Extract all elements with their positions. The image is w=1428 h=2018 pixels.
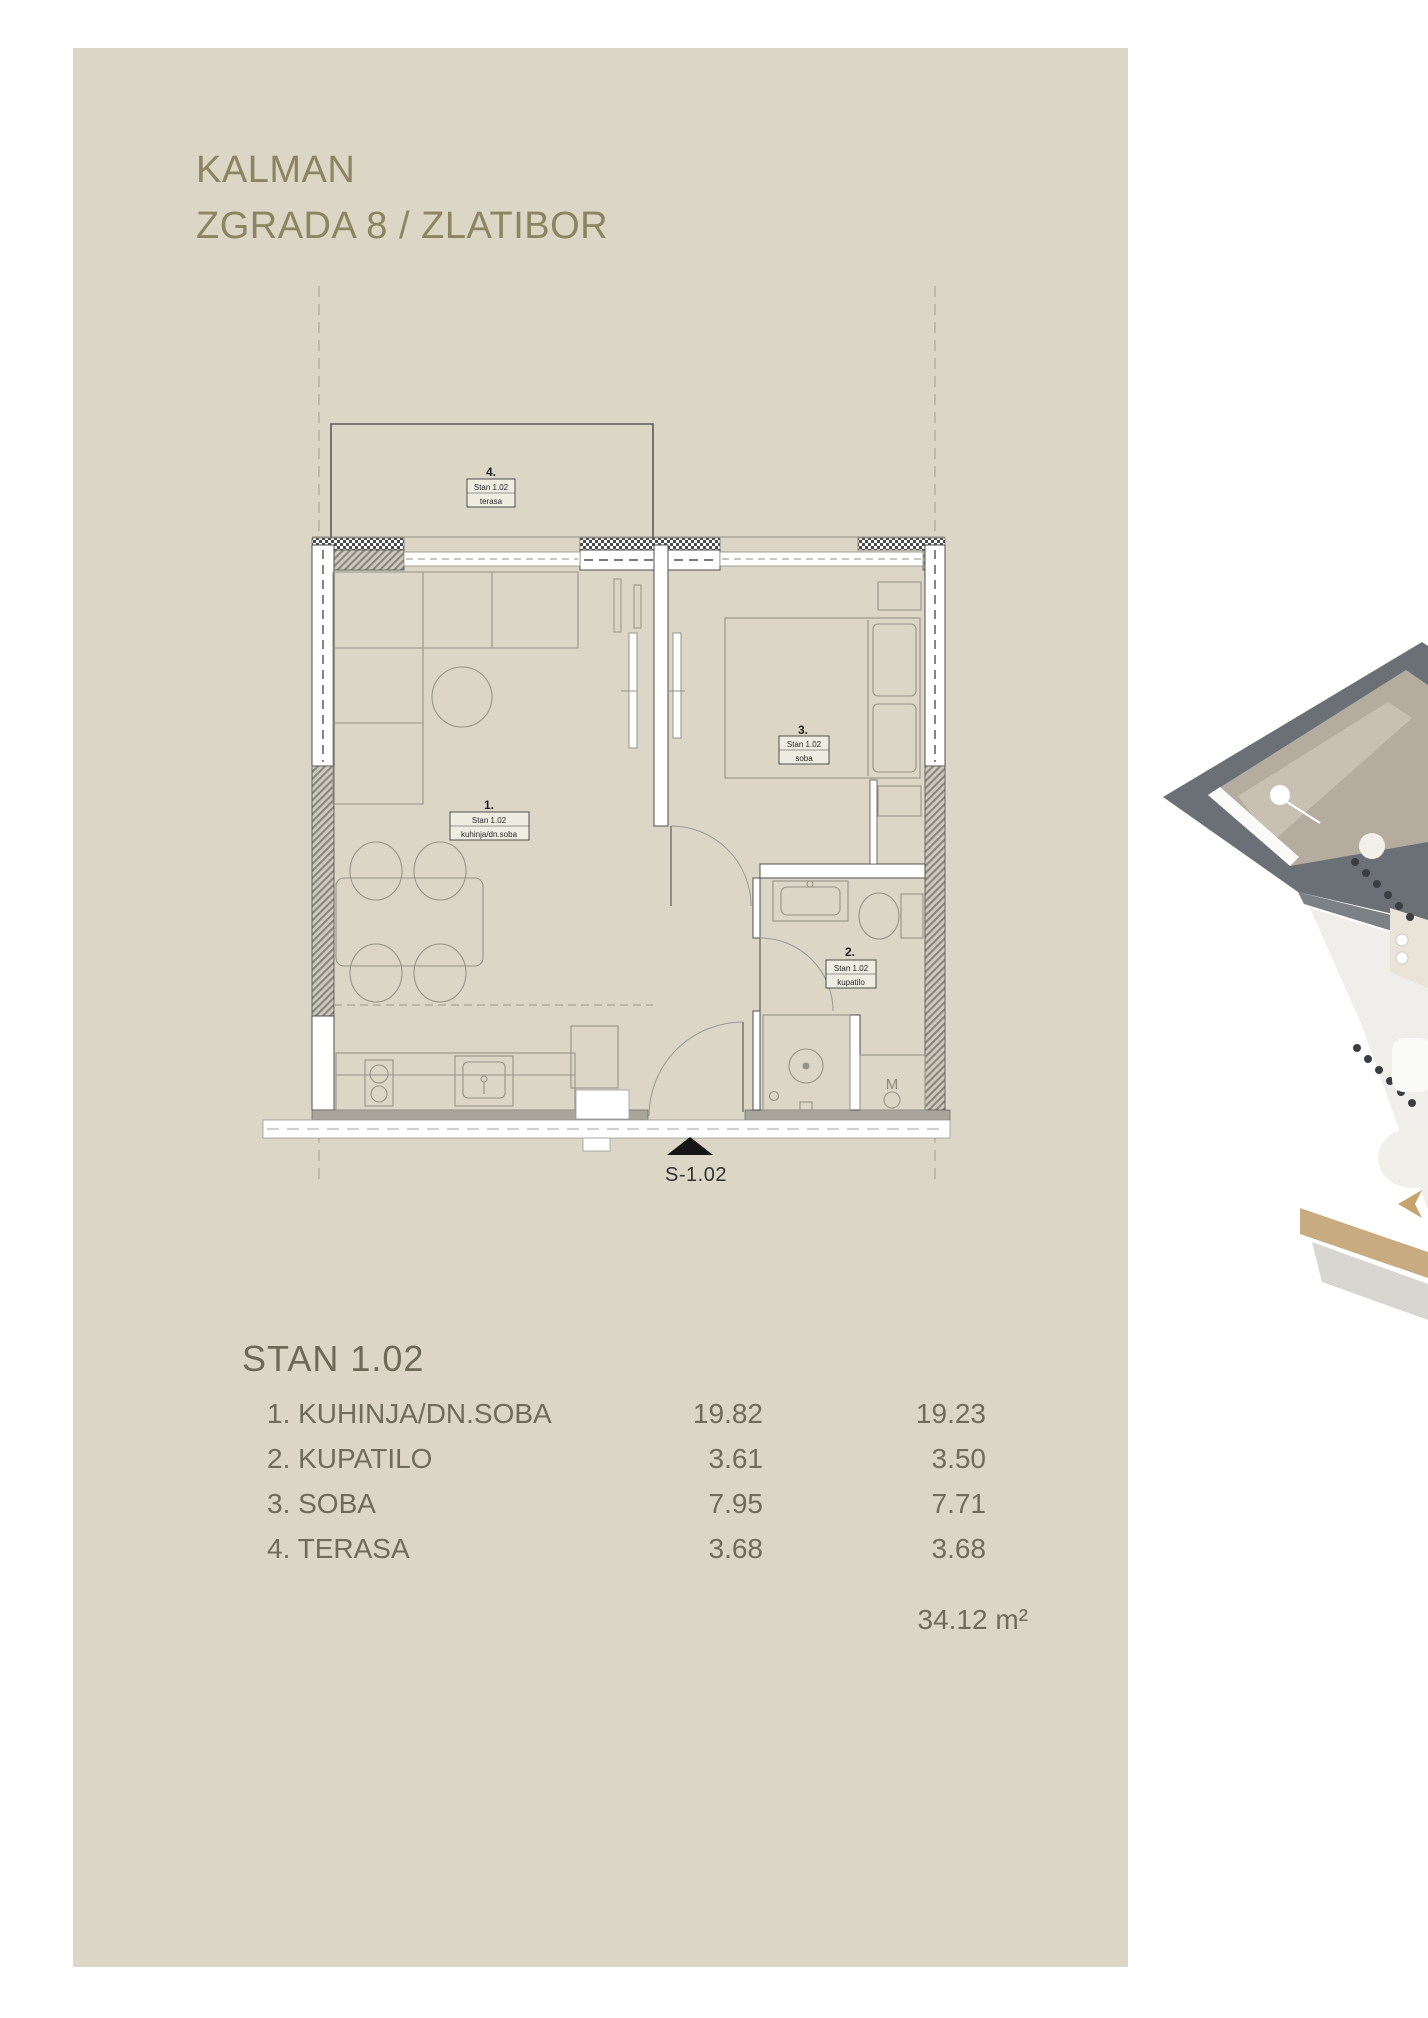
corner-sofa (333, 572, 578, 804)
svg-text:Stan 1.02: Stan 1.02 (834, 964, 869, 973)
building-name: ZGRADA 8 / ZLATIBOR (196, 198, 608, 254)
washing-machine-label: M (886, 1076, 899, 1093)
svg-text:Stan 1.02: Stan 1.02 (472, 816, 507, 825)
bottom-wall (312, 1110, 950, 1120)
room-label-kupatilo: 2. Stan 1.02 kupatilo (826, 945, 876, 988)
chair (350, 944, 402, 1002)
entrance-arrow-icon (667, 1137, 713, 1155)
table-row: 3. SOBA 7.95 7.71 (267, 1481, 986, 1526)
room-area: 7.95 (613, 1488, 763, 1520)
room-area-reduced: 7.71 (763, 1488, 986, 1520)
table-row: 4. TERASA 3.68 3.68 (267, 1526, 986, 1571)
kitchen (336, 1026, 629, 1119)
unit-title: STAN 1.02 (242, 1338, 424, 1380)
coffee-table (432, 667, 492, 727)
apartment-3d-render (1150, 590, 1428, 1320)
pillow (873, 704, 916, 772)
living-furniture (333, 572, 653, 1005)
pillow (873, 624, 916, 696)
page-title: KALMAN ZGRADA 8 / ZLATIBOR (196, 142, 608, 254)
nightstand (878, 786, 921, 816)
walkway (263, 1120, 950, 1151)
room-area-reduced: 3.50 (763, 1443, 986, 1475)
toilet (901, 894, 923, 938)
bathroom-fixtures: M (763, 881, 925, 1110)
table-row: 2. KUPATILO 3.61 3.50 (267, 1436, 986, 1481)
room-label-soba: 3. Stan 1.02 soba (779, 723, 829, 764)
floor-plan-drawing: M (253, 278, 953, 1190)
project-name: KALMAN (196, 142, 608, 198)
room-name: 2. KUPATILO (267, 1443, 613, 1475)
room-area: 3.68 (613, 1533, 763, 1565)
entrance-marker: S-1.02 (665, 1164, 727, 1186)
svg-text:2.: 2. (845, 945, 855, 959)
room-name: 4. TERASA (267, 1533, 613, 1565)
nightstand (878, 582, 921, 610)
left-wall (312, 545, 334, 1110)
render-graphic (1150, 590, 1428, 1320)
svg-text:Stan 1.02: Stan 1.02 (787, 740, 822, 749)
svg-text:Stan 1.02: Stan 1.02 (474, 483, 509, 492)
bedroom-furniture (725, 582, 921, 864)
room-name: 1. KUHINJA/DN.SOBA (267, 1398, 613, 1430)
brochure-page: KALMAN ZGRADA 8 / ZLATIBOR (0, 0, 1428, 2018)
room-area-reduced: 19.23 (763, 1398, 986, 1430)
svg-text:1.: 1. (484, 798, 494, 812)
bathtub (1392, 1038, 1428, 1092)
total-area: 34.12 m² (773, 1604, 1028, 1636)
svg-text:4.: 4. (486, 465, 496, 479)
top-wall (312, 538, 945, 570)
entry-step (583, 1138, 610, 1151)
table-row: 1. KUHINJA/DN.SOBA 19.82 19.23 (267, 1391, 986, 1436)
partition-wall (614, 545, 685, 826)
svg-text:kupatilo: kupatilo (837, 978, 865, 987)
svg-text:terasa: terasa (480, 497, 503, 506)
svg-text:soba: soba (795, 754, 813, 763)
chair (350, 842, 402, 900)
fridge (571, 1026, 618, 1088)
room-label-terasa: 4. Stan 1.02 terasa (467, 465, 515, 507)
chair (414, 944, 466, 1002)
beige-panel: KALMAN ZGRADA 8 / ZLATIBOR (73, 48, 1128, 1967)
entrance-door (649, 1022, 743, 1116)
room-area: 19.82 (613, 1398, 763, 1430)
room-label-kuhinja: 1. Stan 1.02 kuhinja/dn.soba (450, 798, 529, 840)
room-name: 3. SOBA (267, 1488, 613, 1520)
chair (414, 842, 466, 900)
area-table: 1. KUHINJA/DN.SOBA 19.82 19.23 2. KUPATI… (267, 1391, 986, 1571)
bedroom-door (671, 826, 751, 906)
gold-arrow-icon (1398, 1190, 1422, 1218)
room-area: 3.61 (613, 1443, 763, 1475)
svg-text:kuhinja/dn.soba: kuhinja/dn.soba (461, 830, 518, 839)
boundary-guides (319, 286, 935, 1184)
svg-text:3.: 3. (798, 723, 808, 737)
room-area-reduced: 3.68 (763, 1533, 986, 1565)
right-wall (925, 545, 945, 1110)
shower (763, 1015, 850, 1110)
